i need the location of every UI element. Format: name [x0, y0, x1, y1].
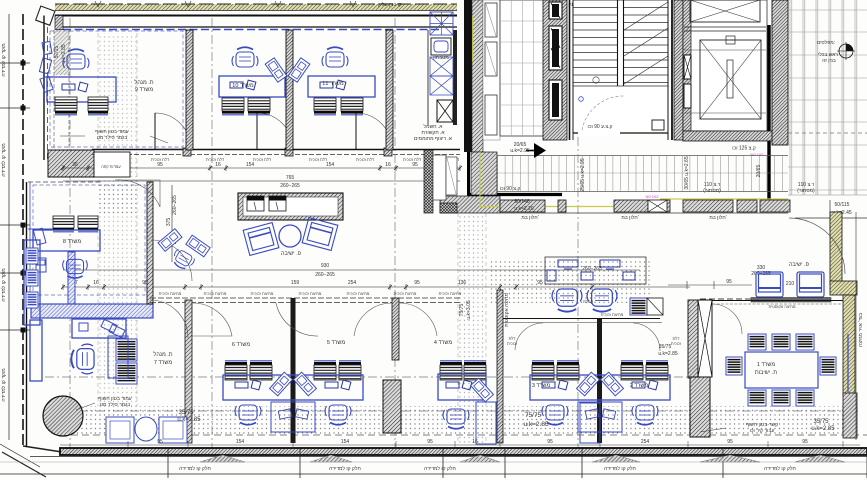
- svg-text:95: 95: [412, 162, 418, 168]
- svg-text:75/75: 75/75: [525, 412, 542, 419]
- svg-text:16: 16: [215, 162, 221, 168]
- svg-text:מחיצת זכוכית: מחיצת זכוכית: [299, 291, 322, 296]
- svg-text:95: 95: [547, 439, 553, 445]
- svg-text:משרד 10: משרד 10: [232, 83, 254, 89]
- svg-text:375: 375: [166, 218, 172, 227]
- svg-text:עבור קיר וכו: עבור קיר וכו: [750, 428, 775, 434]
- svg-text:משרד 5: משרד 5: [327, 340, 346, 346]
- svg-text:חלק קו למדידה: חלק קו למדידה: [604, 465, 636, 472]
- svg-text:ק.צ.ע 90 וכו: ק.צ.ע 90 וכו: [588, 124, 613, 130]
- svg-text:ת. מנהל: ת. מנהל: [134, 79, 153, 86]
- svg-text:ק.צ 90 וכו: ק.צ 90 וכו: [500, 186, 521, 192]
- svg-text:פ. ישיבה: פ. ישיבה: [789, 262, 810, 268]
- svg-text:חלק קו למדידה: חלק קו למדידה: [179, 465, 211, 472]
- svg-text:N0 102: N0 102: [751, 152, 765, 157]
- svg-text:מוקד קו למדידה: מוקד קו למדידה: [0, 368, 7, 402]
- svg-text:א. ריצוף מחוממים: א. ריצוף מחוממים: [414, 136, 453, 142]
- svg-text:136: 136: [458, 280, 467, 286]
- svg-text:א. חשמל: א. חשמל: [424, 123, 444, 130]
- svg-text:35/75: 35/75: [178, 410, 194, 416]
- svg-text:u.k=2.95: u.k=2.95: [510, 148, 530, 154]
- svg-text:u.k=3.05: u.k=3.05: [466, 300, 472, 320]
- svg-text:משרד 11: משרד 11: [322, 81, 344, 87]
- svg-text:ת. ישיבות: ת. ישיבות: [755, 370, 777, 376]
- svg-text:16: 16: [93, 280, 99, 286]
- svg-text:משרד 4: משרד 4: [434, 340, 453, 346]
- svg-text:25/65 u.k=2.95: 25/65 u.k=2.95: [580, 158, 586, 191]
- svg-text:57/15: 57/15: [54, 46, 60, 59]
- svg-text:בגמר סילר מט: בגמר סילר מט: [97, 134, 128, 141]
- svg-text:מחיצה אקוסטית: מחיצה אקוסטית: [504, 293, 510, 327]
- svg-text:260−265: 260−265: [315, 272, 335, 278]
- svg-text:חלון במ': חלון במ': [521, 214, 538, 221]
- svg-text:מחיצת זכוכית: מחיצת זכוכית: [251, 291, 274, 296]
- svg-text:מחיצת זכוכית: מחיצת זכוכית: [204, 291, 227, 296]
- svg-text:u.k=2.85: u.k=2.85: [658, 351, 678, 357]
- svg-text:בגד' אויר מחיצה: בגד' אויר מחיצה: [858, 313, 864, 347]
- svg-text:30/65 u.k=2.65: 30/65 u.k=2.65: [684, 156, 690, 189]
- svg-text:254: 254: [641, 439, 650, 445]
- svg-text:מוקד קו למדידה: מוקד קו למדידה: [0, 43, 7, 77]
- svg-text:חלון במ': חלון במ': [709, 214, 726, 221]
- svg-text:N0 102: N0 102: [646, 194, 660, 199]
- svg-text:קו בנין עליון: קו בנין עליון: [378, 1, 402, 8]
- svg-text:חלון במ': חלון במ': [621, 214, 638, 221]
- svg-text:36: 36: [72, 162, 78, 168]
- svg-text:דלת זכוכית: דלת זכוכית: [253, 157, 272, 162]
- svg-text:154: 154: [341, 439, 350, 445]
- svg-text:חלק קו למדידה: חלק קו למדידה: [329, 465, 361, 472]
- svg-text:זכוכית: זכוכית: [671, 341, 682, 346]
- svg-text:מחיצת זכוכית: מחיצת זכוכית: [394, 291, 417, 296]
- svg-text:75/75: 75/75: [459, 304, 465, 317]
- svg-text:מוקד קו למדידה: מוקד קו למדידה: [0, 143, 7, 177]
- svg-text:u.k=2.85: u.k=2.85: [61, 44, 67, 64]
- svg-text:930: 930: [321, 263, 330, 269]
- svg-text:16: 16: [385, 162, 391, 168]
- svg-text:35/75: 35/75: [659, 344, 672, 350]
- svg-text:765: 765: [286, 175, 295, 181]
- svg-text:בגמר סילר מט: בגמר סילר מט: [100, 401, 131, 408]
- svg-text:משרד 7: משרד 7: [154, 360, 173, 366]
- svg-text:95: 95: [802, 439, 808, 445]
- svg-text:ראש בכלי: ראש בכלי: [818, 51, 839, 58]
- svg-text:משרד 6: משרד 6: [232, 342, 251, 348]
- svg-text:קבלה: קבלה: [583, 299, 594, 304]
- svg-text:(מסתור): (מסתור): [797, 188, 815, 194]
- svg-text:159: 159: [291, 280, 300, 286]
- svg-text:בנין זה: בנין זה: [822, 58, 836, 64]
- svg-text:מחיצת זכוכית: מחיצת זכוכית: [159, 291, 182, 296]
- svg-text:95: 95: [157, 162, 163, 168]
- svg-text:זכוכית: זכוכית: [507, 341, 518, 346]
- svg-text:95: 95: [726, 279, 732, 285]
- svg-text:50/140: 50/140: [514, 199, 530, 205]
- svg-text:ק.צ 125 וכו: ק.צ 125 וכו: [732, 146, 755, 152]
- svg-text:154: 154: [326, 162, 335, 168]
- svg-text:50/115: 50/115: [835, 202, 850, 208]
- svg-text:95: 95: [414, 280, 420, 286]
- svg-text:פ. ישיבה: פ. ישיבה: [281, 251, 302, 257]
- svg-text:מחיצת זכוכית: מחיצת זכוכית: [347, 291, 370, 296]
- svg-text:מפלסים:: מפלסים:: [817, 39, 835, 46]
- svg-text:מטבחון: מטבחון: [433, 55, 449, 61]
- svg-text:254: 254: [348, 280, 357, 286]
- svg-text:95: 95: [727, 439, 733, 445]
- svg-text:משרד 9: משרד 9: [135, 87, 154, 93]
- svg-text:משרד 8: משרד 8: [63, 239, 82, 245]
- svg-text:מחיצת זכוכית: מחיצת זכוכית: [439, 291, 462, 296]
- svg-text:u.k=2.20: u.k=2.20: [514, 206, 534, 212]
- svg-text:ת. מנהל: ת. מנהל: [153, 351, 172, 358]
- svg-text:u.k=2.85: u.k=2.85: [523, 421, 549, 428]
- svg-text:20/65: 20/65: [756, 165, 762, 178]
- svg-text:16: 16: [472, 439, 478, 445]
- svg-text:210: 210: [786, 281, 795, 287]
- svg-text:154: 154: [236, 439, 245, 445]
- svg-text:משרד 1: משרד 1: [757, 362, 776, 368]
- svg-text:דלת זכוכית: דלת זכוכית: [356, 157, 375, 162]
- svg-text:154: 154: [246, 162, 255, 168]
- svg-text:חלק קו למדידה: חלק קו למדידה: [764, 465, 796, 472]
- svg-text:(מסתור): (מסתור): [703, 188, 721, 194]
- svg-text:35/75: 35/75: [813, 419, 829, 425]
- svg-text:95: 95: [157, 439, 163, 445]
- svg-text:מחיצה אקוסטית: מחיצה אקוסטית: [768, 304, 795, 309]
- svg-text:מוקד קו למדידה: מוקד קו למדידה: [0, 268, 7, 302]
- svg-text:u.k=2.85: u.k=2.85: [177, 417, 201, 423]
- svg-text:עמדות קפה: עמדות קפה: [101, 164, 121, 169]
- svg-text:260−265: 260−265: [280, 183, 300, 189]
- svg-text:95: 95: [537, 280, 543, 286]
- svg-text:95: 95: [427, 439, 433, 445]
- svg-text:u.k=2.85: u.k=2.85: [811, 426, 835, 432]
- svg-text:260−265: 260−265: [172, 195, 178, 215]
- svg-text:מחיצת זכוכית: מחיצת זכוכית: [601, 312, 624, 317]
- svg-text:260−265: 260−265: [582, 266, 602, 272]
- svg-text:חלק קו למדידה: חלק קו למדידה: [424, 465, 456, 472]
